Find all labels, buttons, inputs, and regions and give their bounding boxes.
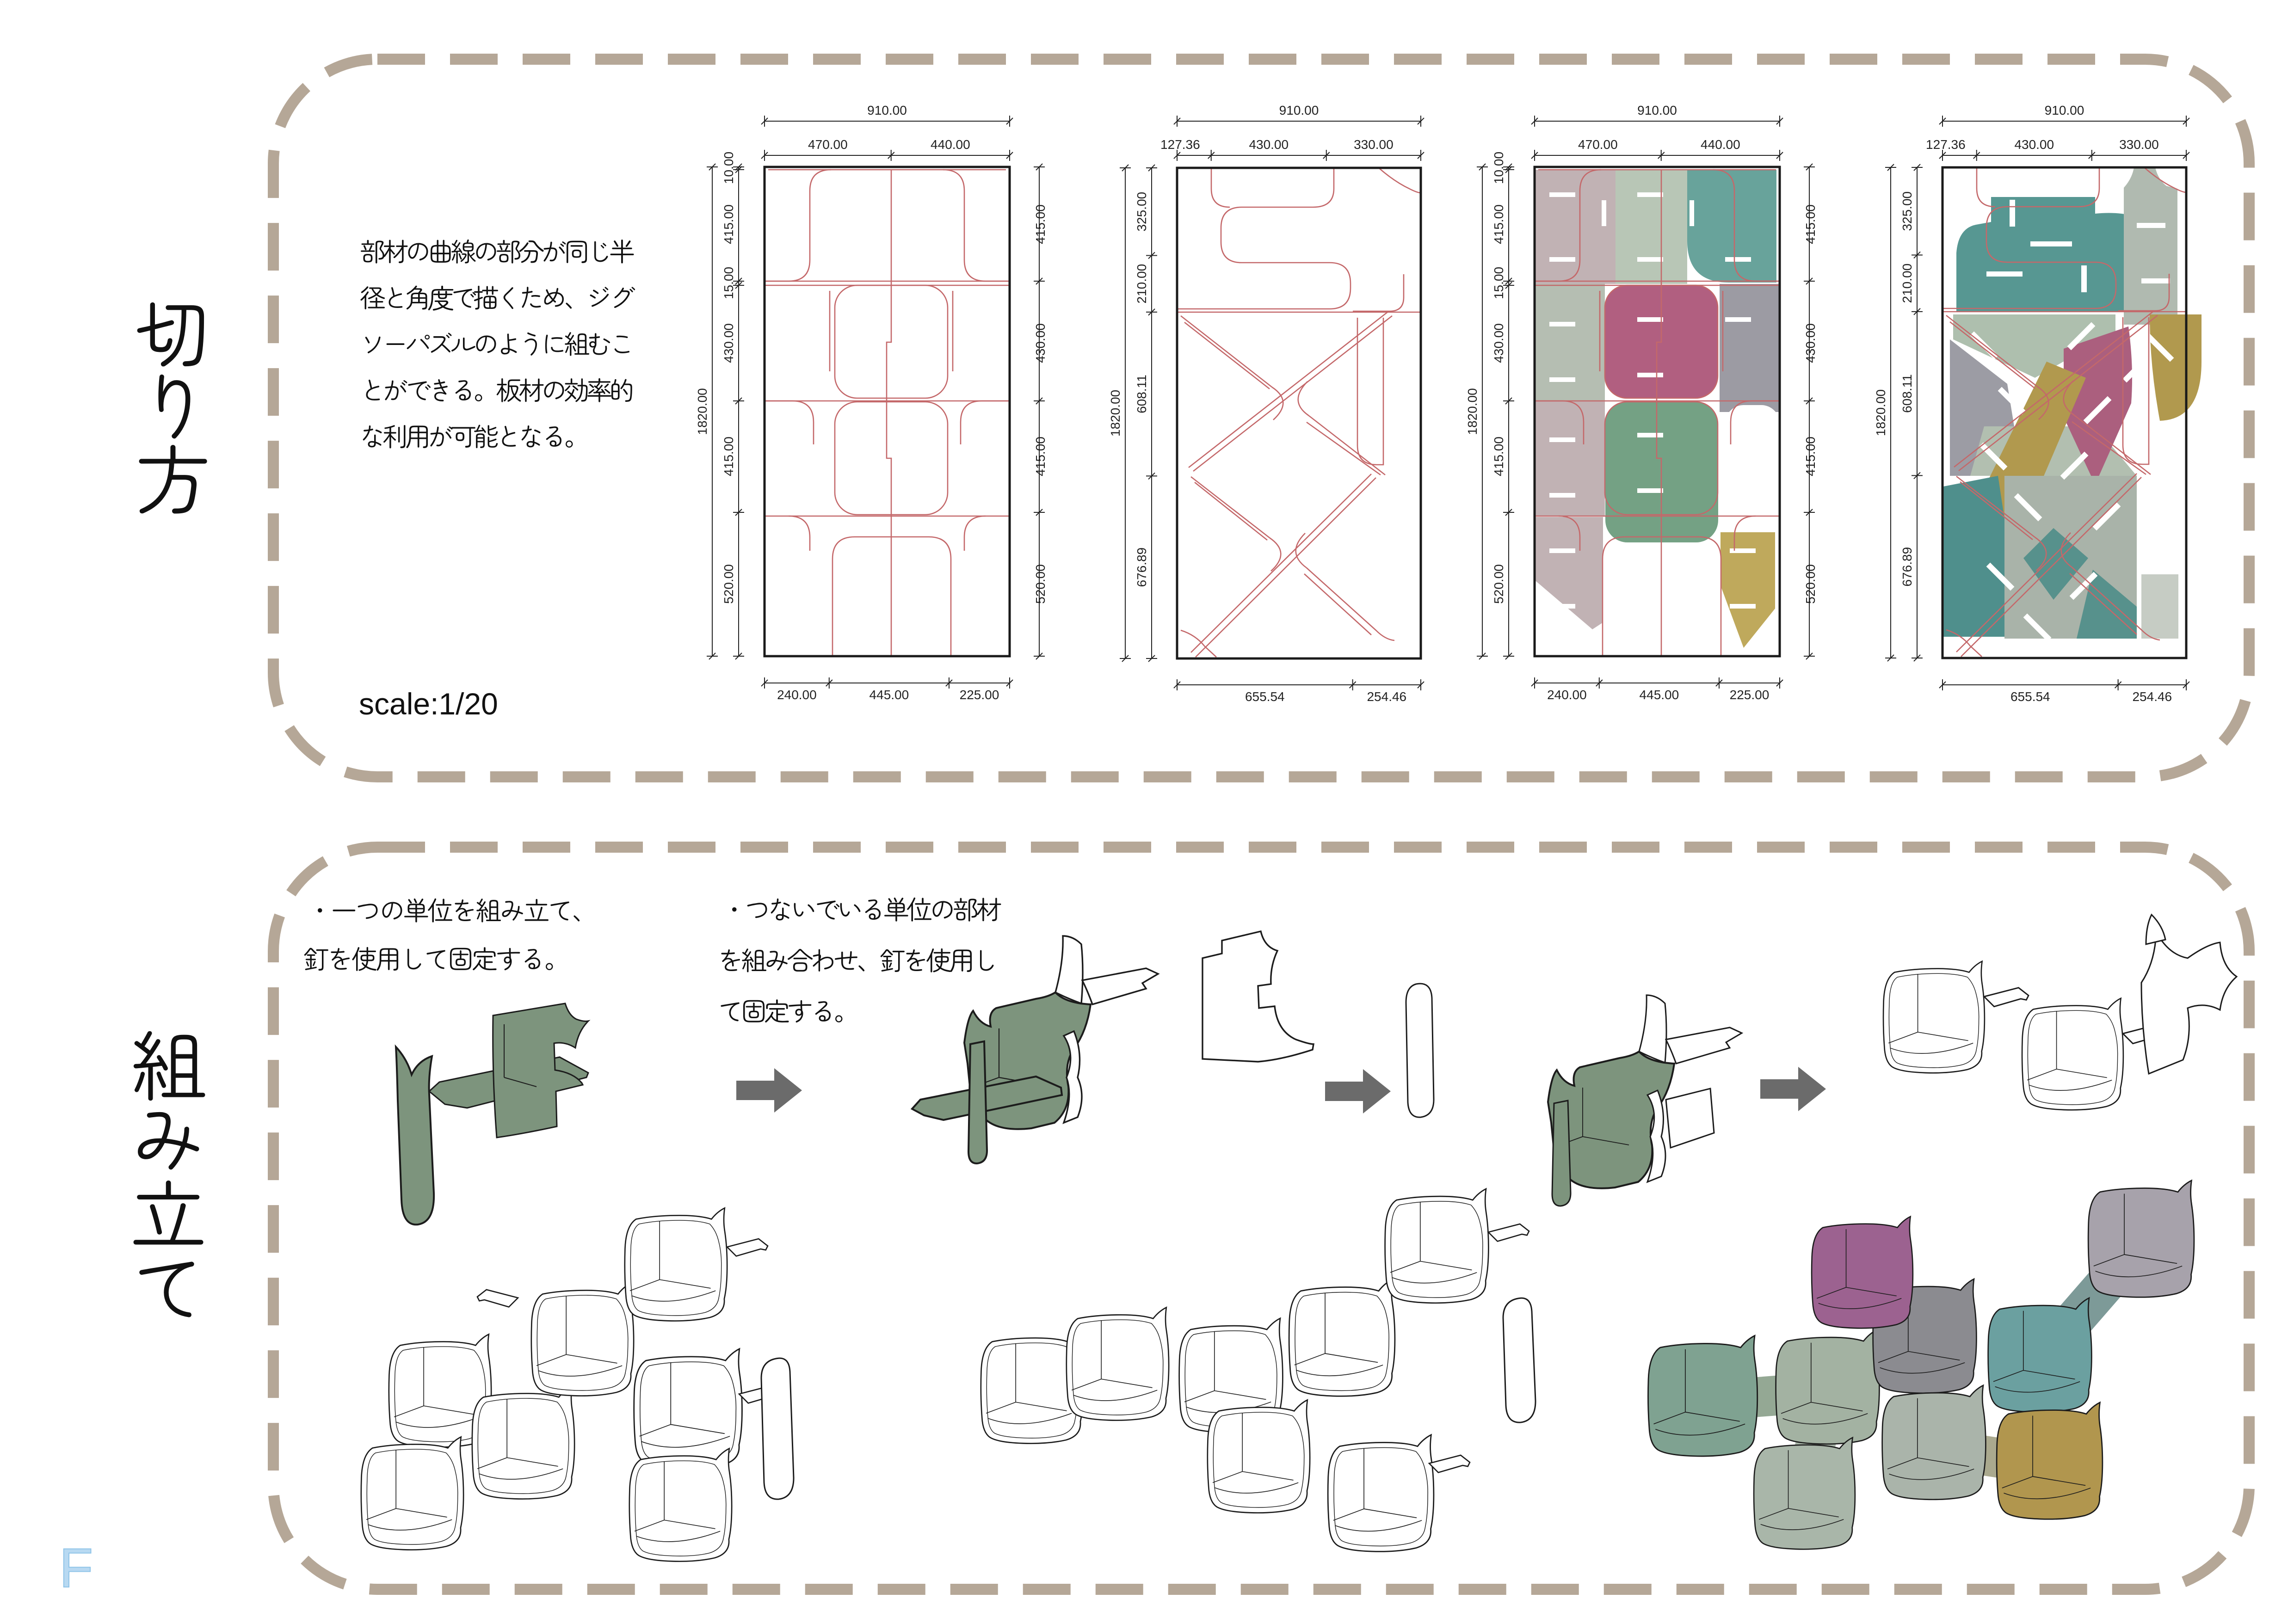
svg-text:655.54: 655.54 — [2010, 689, 2050, 704]
svg-text:608.11: 608.11 — [1900, 374, 1914, 413]
svg-text:とができる。板材の効率的: とができる。板材の効率的 — [360, 370, 632, 408]
svg-text:440.00: 440.00 — [931, 137, 970, 152]
svg-text:676.89: 676.89 — [1135, 547, 1149, 587]
svg-text:127.36: 127.36 — [1926, 137, 1966, 152]
svg-text:445.00: 445.00 — [869, 688, 909, 702]
svg-text:415.00: 415.00 — [721, 204, 736, 244]
svg-text:440.00: 440.00 — [1701, 137, 1740, 152]
svg-text:て: て — [130, 1229, 206, 1339]
svg-text:scale:1/20: scale:1/20 — [359, 679, 498, 724]
svg-text:655.54: 655.54 — [1245, 689, 1285, 704]
svg-text:ソーパズルのように組むこ: ソーパズルのように組むこ — [360, 324, 632, 362]
svg-text:430.00: 430.00 — [1492, 323, 1506, 363]
svg-text:415.00: 415.00 — [721, 437, 736, 476]
svg-text:210.00: 210.00 — [1900, 264, 1914, 303]
svg-text:415.00: 415.00 — [1492, 437, 1506, 476]
svg-text:127.36: 127.36 — [1160, 137, 1200, 152]
svg-text:520.00: 520.00 — [721, 564, 736, 604]
svg-text:910.00: 910.00 — [1279, 103, 1319, 117]
svg-text:240.00: 240.00 — [777, 688, 817, 702]
svg-text:430.00: 430.00 — [1803, 323, 1818, 363]
svg-text:430.00: 430.00 — [721, 323, 736, 363]
svg-text:F: F — [59, 1537, 93, 1599]
svg-text:445.00: 445.00 — [1640, 688, 1679, 702]
svg-text:を組み合わせ、釘を使用し: を組み合わせ、釘を使用し — [718, 941, 995, 978]
svg-text:330.00: 330.00 — [1354, 137, 1394, 152]
svg-text:部材の曲線の部分が同じ半: 部材の曲線の部分が同じ半 — [360, 232, 634, 269]
svg-text:520.00: 520.00 — [1803, 564, 1818, 604]
svg-text:15.00: 15.00 — [1492, 267, 1506, 299]
svg-text:10.00: 10.00 — [721, 152, 736, 184]
svg-text:15.00: 15.00 — [721, 267, 736, 299]
svg-text:釘を使用して固定する。: 釘を使用して固定する。 — [303, 939, 568, 977]
svg-text:676.89: 676.89 — [1900, 547, 1914, 587]
svg-text:254.46: 254.46 — [1367, 689, 1406, 704]
svg-text:1820.00: 1820.00 — [1874, 389, 1888, 436]
svg-text:520.00: 520.00 — [1492, 564, 1506, 604]
svg-text:415.00: 415.00 — [1803, 437, 1818, 476]
svg-text:430.00: 430.00 — [2014, 137, 2054, 152]
svg-text:254.46: 254.46 — [2132, 689, 2172, 704]
svg-text:1820.00: 1820.00 — [1465, 388, 1480, 435]
svg-text:225.00: 225.00 — [1730, 688, 1770, 702]
svg-text:415.00: 415.00 — [1033, 437, 1048, 476]
svg-text:な利用が可能となる。: な利用が可能となる。 — [360, 417, 586, 454]
svg-text:1820.00: 1820.00 — [695, 388, 709, 435]
svg-text:330.00: 330.00 — [2119, 137, 2159, 152]
svg-text:910.00: 910.00 — [2045, 103, 2084, 117]
svg-text:470.00: 470.00 — [1578, 137, 1618, 152]
svg-text:方: 方 — [136, 421, 212, 531]
svg-text:430.00: 430.00 — [1033, 323, 1048, 363]
svg-text:240.00: 240.00 — [1547, 688, 1587, 702]
svg-text:470.00: 470.00 — [808, 137, 848, 152]
svg-text:325.00: 325.00 — [1900, 191, 1914, 231]
svg-text:415.00: 415.00 — [1492, 204, 1506, 244]
svg-text:・一つの単位を組み立て、: ・一つの単位を組み立て、 — [307, 891, 596, 928]
svg-text:415.00: 415.00 — [1803, 204, 1818, 244]
svg-text:225.00: 225.00 — [960, 688, 999, 702]
svg-text:520.00: 520.00 — [1033, 564, 1048, 604]
svg-text:10.00: 10.00 — [1492, 152, 1506, 184]
svg-text:210.00: 210.00 — [1135, 264, 1149, 304]
svg-text:910.00: 910.00 — [1637, 103, 1677, 117]
svg-text:415.00: 415.00 — [1033, 204, 1048, 244]
svg-text:て固定する。: て固定する。 — [718, 991, 857, 1029]
svg-text:・つないでいる単位の部材: ・つないでいる単位の部材 — [721, 890, 1001, 927]
svg-text:1820.00: 1820.00 — [1108, 390, 1122, 437]
svg-text:910.00: 910.00 — [867, 103, 907, 117]
svg-text:径と角度で描くため、ジグ: 径と角度で描くため、ジグ — [360, 278, 635, 315]
svg-text:430.00: 430.00 — [1249, 137, 1289, 152]
svg-text:325.00: 325.00 — [1135, 192, 1149, 232]
svg-text:608.11: 608.11 — [1135, 375, 1149, 413]
